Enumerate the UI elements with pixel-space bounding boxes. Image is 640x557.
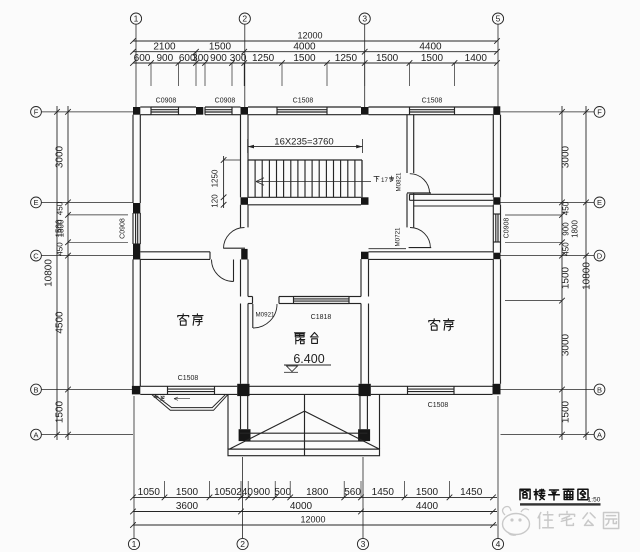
svg-text:3000: 3000	[561, 145, 572, 168]
svg-text:1450: 1450	[460, 487, 483, 498]
svg-text:12000: 12000	[297, 31, 322, 41]
svg-text:450: 450	[56, 201, 65, 215]
svg-text:500: 500	[274, 487, 291, 498]
svg-text:1500: 1500	[209, 42, 232, 53]
svg-text:C0908: C0908	[504, 218, 511, 239]
svg-text:C1508: C1508	[293, 98, 314, 105]
svg-text:C0908: C0908	[120, 218, 127, 239]
svg-text:A: A	[33, 430, 38, 439]
svg-text:16X235=3760: 16X235=3760	[274, 137, 333, 148]
svg-text:C1508: C1508	[422, 98, 443, 105]
svg-text:4400: 4400	[419, 42, 442, 53]
svg-text:900: 900	[253, 487, 270, 498]
svg-text:1800: 1800	[571, 220, 580, 238]
svg-text:900: 900	[156, 53, 173, 64]
svg-text:3: 3	[362, 14, 367, 24]
svg-text:1500: 1500	[561, 400, 572, 423]
svg-text:E: E	[33, 198, 38, 207]
svg-text:900: 900	[210, 53, 227, 64]
svg-text:C1818: C1818	[311, 314, 332, 321]
svg-text:B: B	[597, 385, 602, 394]
svg-text:600: 600	[134, 53, 151, 64]
svg-text:M0721: M0721	[395, 227, 402, 246]
svg-text:1050: 1050	[138, 487, 161, 498]
svg-text:F: F	[34, 108, 39, 117]
svg-text:240: 240	[236, 487, 253, 498]
svg-text:450: 450	[562, 201, 571, 215]
svg-text:10800: 10800	[582, 262, 593, 290]
svg-text:300: 300	[192, 53, 209, 64]
svg-text:17: 17	[381, 177, 388, 184]
svg-text:3600: 3600	[176, 501, 199, 512]
svg-text:D: D	[597, 251, 603, 260]
svg-text:1: 1	[134, 14, 139, 24]
svg-text:1250: 1250	[252, 53, 275, 64]
svg-text:1450: 1450	[372, 487, 395, 498]
svg-text:C1508: C1508	[428, 402, 449, 409]
svg-text:450: 450	[562, 242, 571, 256]
svg-text:A: A	[597, 430, 602, 439]
svg-text:2: 2	[240, 539, 245, 549]
svg-text:1800: 1800	[57, 219, 66, 237]
svg-text:1400: 1400	[465, 53, 488, 64]
svg-text:C0908: C0908	[215, 98, 236, 105]
svg-text:3000: 3000	[55, 145, 66, 168]
svg-text:1: 1	[132, 539, 137, 549]
svg-text:560: 560	[344, 487, 361, 498]
svg-text:1250: 1250	[211, 169, 220, 187]
svg-text:3: 3	[361, 539, 366, 549]
svg-text:1500: 1500	[416, 487, 439, 498]
svg-text:1:50: 1:50	[588, 497, 601, 504]
svg-text:C1508: C1508	[178, 375, 199, 382]
svg-text:B: B	[33, 385, 38, 394]
svg-text:C0908: C0908	[156, 98, 177, 105]
svg-text:2100: 2100	[153, 42, 176, 53]
svg-text:1500: 1500	[176, 487, 199, 498]
svg-text:3000: 3000	[561, 333, 572, 356]
svg-text:900: 900	[562, 222, 571, 236]
svg-text:4400: 4400	[416, 501, 439, 512]
svg-text:450: 450	[56, 242, 65, 256]
svg-text:4: 4	[496, 539, 501, 549]
svg-text:C: C	[33, 251, 39, 260]
svg-text:1500: 1500	[421, 53, 444, 64]
svg-text:1800: 1800	[306, 487, 329, 498]
svg-text:4500: 4500	[55, 311, 66, 334]
svg-text:2: 2	[242, 14, 247, 24]
svg-text:1050: 1050	[214, 487, 237, 498]
svg-text:120: 120	[211, 194, 220, 208]
svg-text:12000: 12000	[300, 515, 325, 525]
svg-text:1500: 1500	[561, 266, 572, 289]
svg-text:6.400: 6.400	[293, 352, 324, 366]
svg-text:4000: 4000	[290, 501, 313, 512]
svg-text:1500: 1500	[293, 53, 316, 64]
svg-text:1250: 1250	[335, 53, 358, 64]
svg-text:E: E	[597, 198, 602, 207]
svg-text:1500: 1500	[376, 53, 399, 64]
svg-text:10800: 10800	[44, 259, 55, 287]
svg-text:5: 5	[496, 14, 501, 24]
svg-text:F: F	[597, 108, 602, 117]
svg-text:1500: 1500	[55, 400, 66, 423]
svg-text:M0921: M0921	[256, 312, 275, 319]
svg-text:M0821: M0821	[396, 172, 403, 191]
svg-text:4000: 4000	[293, 42, 316, 53]
svg-text:300: 300	[230, 53, 247, 64]
